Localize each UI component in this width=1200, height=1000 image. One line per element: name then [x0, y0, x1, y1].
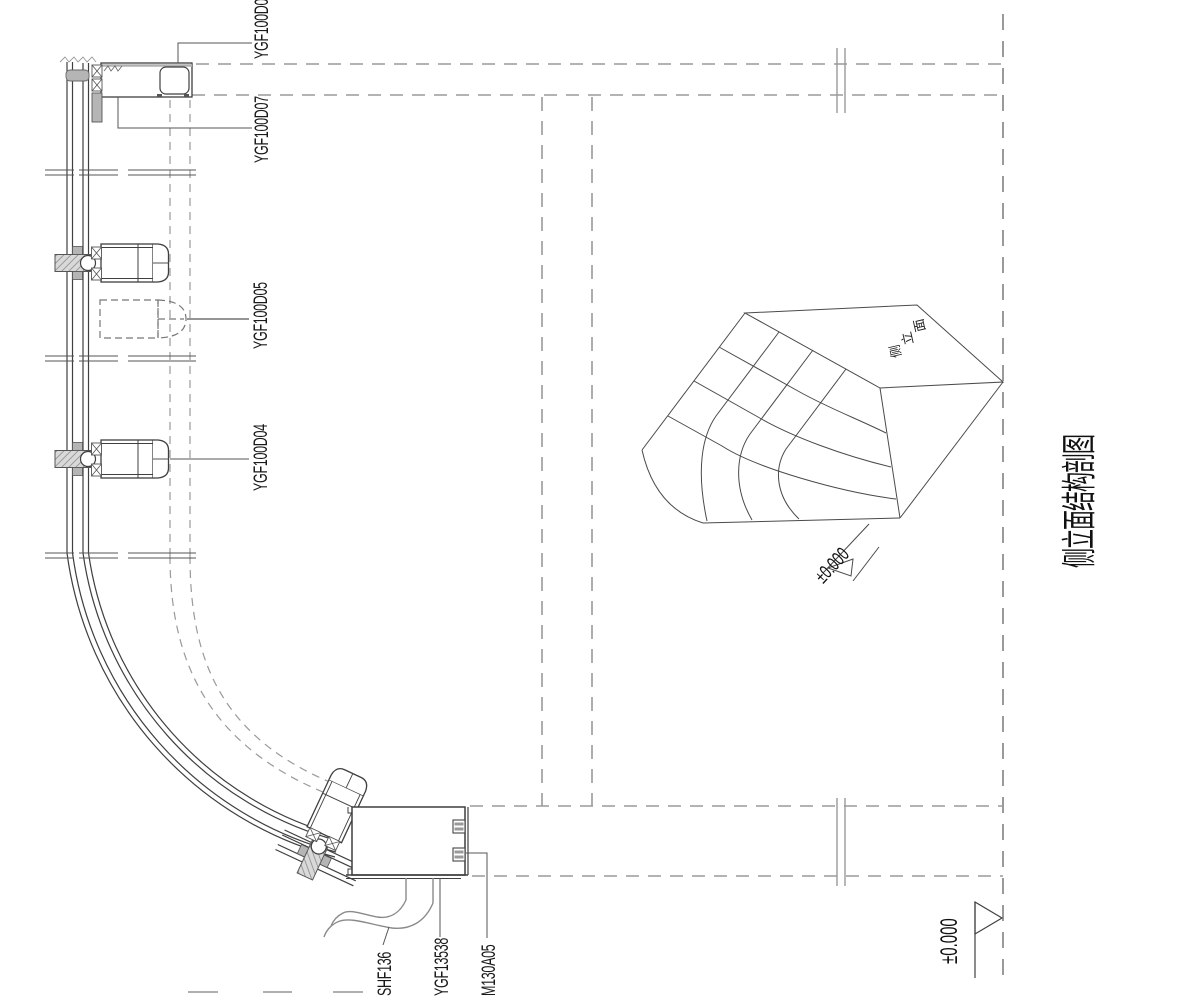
label-shf136: SHF136: [374, 952, 396, 996]
cad-drawing-sheet: YGF100D06 YGF100D07 YGF100D05 YGF100D04 …: [0, 0, 1200, 1000]
label-ygf100d07: YGF100D07: [251, 96, 273, 163]
label-m130a05: M130A05: [478, 945, 500, 996]
label-ygf100d05: YGF100D05: [250, 282, 272, 349]
datum-elevation-text: ±0.000: [936, 918, 963, 964]
section-linework: [0, 0, 1200, 1000]
key-cube: [642, 305, 1003, 581]
datum-marker: [975, 902, 1002, 978]
drawing-title: 侧立面结构剖图: [1051, 435, 1102, 568]
label-ygf13538: YGF13538: [431, 938, 453, 996]
label-ygf100d06: YGF100D06: [251, 0, 273, 59]
mullion-ygf100d05-dashed: [100, 300, 249, 338]
mullion-ygf100d04: [55, 440, 249, 478]
break-marks: [45, 170, 196, 558]
label-ygf100d04: YGF100D04: [250, 424, 272, 491]
